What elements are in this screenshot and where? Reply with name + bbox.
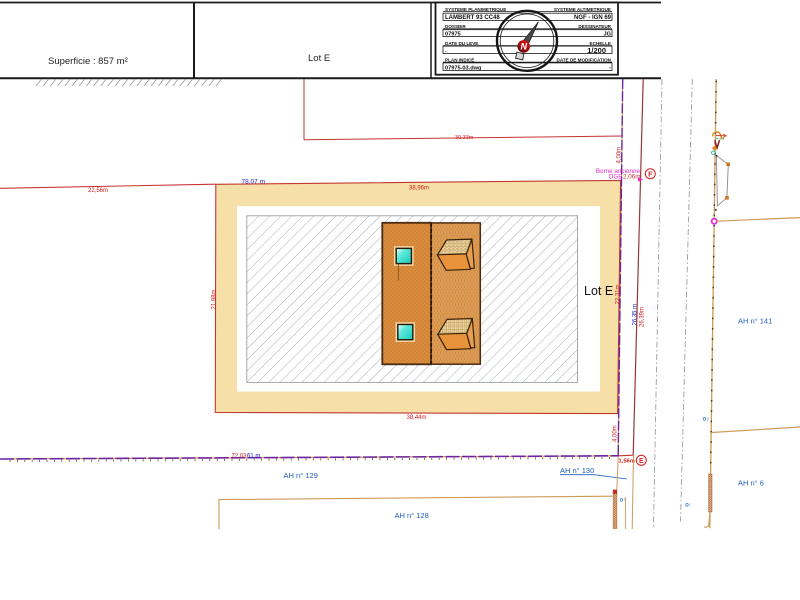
svg-text:4,00m: 4,00m	[613, 425, 619, 442]
svg-text:PLAN INDICE: PLAN INDICE	[445, 58, 474, 63]
svg-text:30,33m: 30,33m	[455, 135, 474, 141]
svg-text:2,06m: 2,06m	[623, 174, 641, 181]
svg-text:1,56m: 1,56m	[619, 459, 635, 465]
svg-text:NGF - IGN 69: NGF - IGN 69	[574, 15, 612, 21]
svg-text:38,44m: 38,44m	[407, 415, 427, 421]
svg-text:21,98m: 21,98m	[212, 289, 218, 309]
svg-text:DATE DU LEVE: DATE DU LEVE	[445, 41, 478, 46]
svg-text:Superficie : 857 m²: Superficie : 857 m²	[48, 56, 128, 67]
svg-text:DESSINATEUR: DESSINATEUR	[578, 24, 611, 29]
svg-text:Lot E: Lot E	[308, 53, 330, 64]
svg-text:DOSSIER: DOSSIER	[445, 24, 466, 29]
svg-text:AH n° 141: AH n° 141	[738, 316, 772, 325]
svg-text:22,56m: 22,56m	[88, 188, 108, 194]
svg-text:07975-03.dwg: 07975-03.dwg	[445, 65, 482, 71]
svg-text:AH n° 128: AH n° 128	[395, 511, 429, 520]
svg-text:07975: 07975	[445, 31, 461, 37]
svg-text:-: -	[609, 65, 611, 71]
svg-text:DATE DE MODIFICATION: DATE DE MODIFICATION	[557, 58, 612, 63]
svg-text:AH n° 129: AH n° 129	[284, 471, 318, 480]
svg-text:SYSTEME PLANIMETRIQUE: SYSTEME PLANIMETRIQUE	[445, 7, 506, 12]
svg-text:N: N	[520, 42, 527, 52]
svg-text:61 m: 61 m	[247, 454, 260, 460]
svg-text:78,07 m: 78,07 m	[242, 179, 266, 186]
svg-text:Lot E: Lot E	[584, 284, 613, 298]
svg-text:26,39m: 26,39m	[640, 307, 646, 327]
svg-text:E: E	[639, 458, 644, 465]
svg-text:1/200: 1/200	[587, 46, 606, 55]
svg-text:AH n° 6: AH n° 6	[738, 478, 764, 487]
svg-text:LAMBERT 93 CC48: LAMBERT 93 CC48	[445, 15, 500, 21]
svg-text:OGE: OGE	[609, 174, 623, 181]
svg-text:JG: JG	[604, 31, 611, 37]
svg-text:SYSTEME ALTIMETRIQUE: SYSTEME ALTIMETRIQUE	[554, 7, 611, 12]
svg-text:g: g	[707, 416, 709, 420]
svg-text:AH n° 130: AH n° 130	[560, 466, 594, 475]
svg-text:38,96m: 38,96m	[409, 186, 429, 192]
svg-text:72,03: 72,03	[232, 454, 248, 460]
svg-text:F: F	[648, 172, 653, 179]
